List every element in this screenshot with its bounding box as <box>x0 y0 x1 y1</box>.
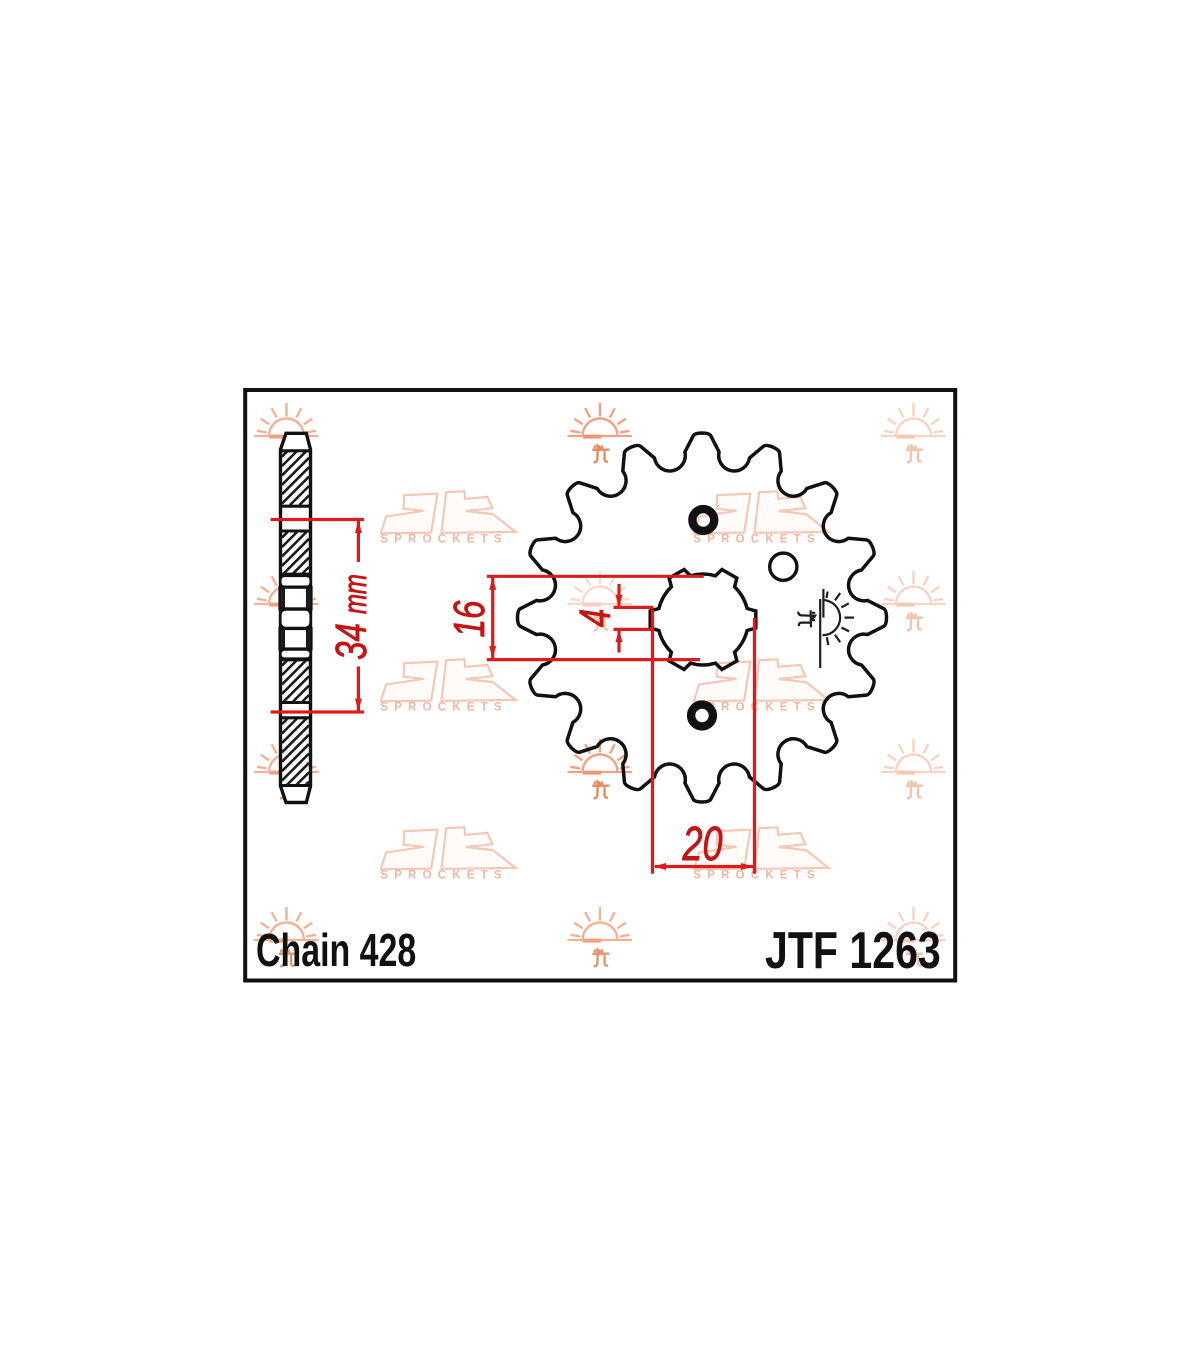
svg-text:SPROCKETS: SPROCKETS <box>380 533 507 545</box>
svg-text:SPROCKETS: SPROCKETS <box>380 701 507 713</box>
svg-text:SPROCKETS: SPROCKETS <box>693 533 820 545</box>
svg-text:JTF 1263: JTF 1263 <box>765 921 941 979</box>
svg-text:SPROCKETS: SPROCKETS <box>693 869 820 881</box>
svg-text:16: 16 <box>446 600 495 637</box>
svg-text:SPROCKETS: SPROCKETS <box>380 869 507 881</box>
svg-text:4: 4 <box>572 609 621 627</box>
svg-text:Chain 428: Chain 428 <box>256 924 416 977</box>
svg-text:20: 20 <box>682 817 723 870</box>
